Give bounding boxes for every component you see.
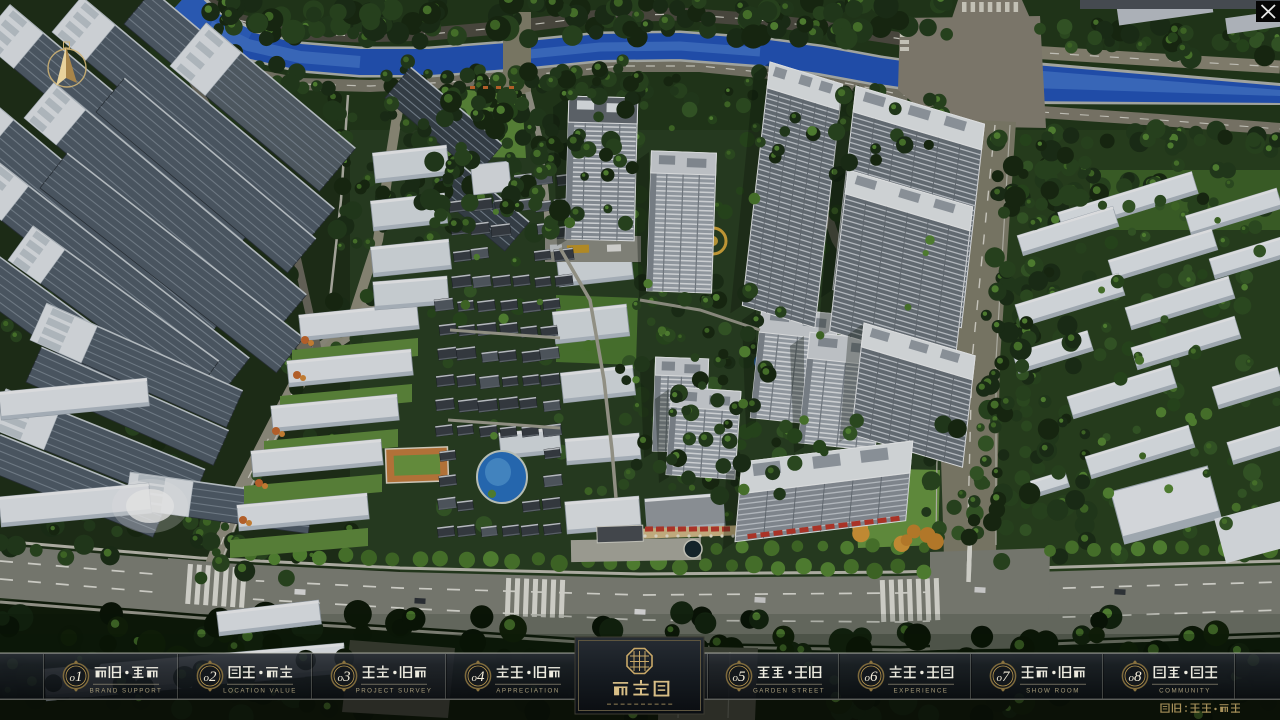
svg-text:COMMUNITY: COMMUNITY bbox=[1159, 688, 1211, 695]
svg-text:o3: o3 bbox=[338, 669, 351, 685]
svg-text:o7: o7 bbox=[997, 669, 1012, 685]
svg-text:o6: o6 bbox=[865, 669, 879, 685]
svg-text:o4: o4 bbox=[472, 669, 486, 685]
svg-text:LOCATION VALUE: LOCATION VALUE bbox=[223, 688, 297, 695]
svg-text:APPRECIATION: APPRECIATION bbox=[496, 688, 560, 695]
svg-text:o8: o8 bbox=[1129, 669, 1143, 685]
svg-text:PROJECT SURVEY: PROJECT SURVEY bbox=[356, 688, 433, 695]
svg-text:o2: o2 bbox=[204, 669, 218, 685]
svg-text:GARDEN STREET: GARDEN STREET bbox=[753, 688, 825, 695]
svg-text:SHOW ROOM: SHOW ROOM bbox=[1026, 688, 1080, 695]
svg-text:EXPERIENCE: EXPERIENCE bbox=[894, 688, 949, 695]
svg-text:o5: o5 bbox=[733, 669, 747, 685]
svg-text:BRAND SUPPORT: BRAND SUPPORT bbox=[90, 688, 163, 695]
svg-text:o1: o1 bbox=[70, 669, 83, 685]
